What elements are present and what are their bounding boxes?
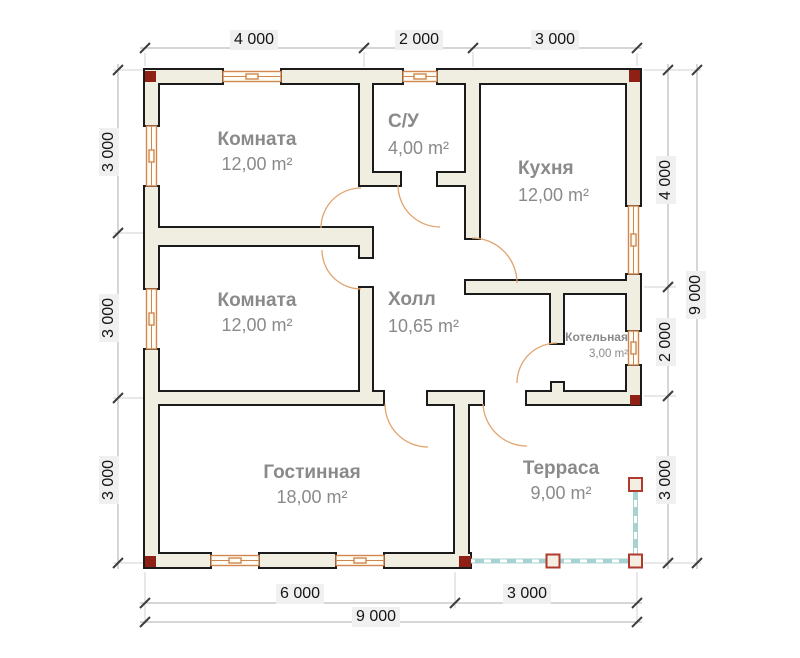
dim-bottom-0: 6 000	[276, 584, 324, 604]
window-icon	[147, 289, 157, 349]
room-label-boiler: Котельная 3,00 m²	[565, 329, 628, 363]
room-name: Комната	[218, 288, 297, 313]
window-icon	[223, 72, 281, 82]
room-name: Холл	[388, 287, 459, 313]
room-area: 12,00 m²	[518, 182, 589, 208]
room-label-terrace: Терраса 9,00 m²	[523, 456, 599, 506]
dim-left-0: 3 000	[99, 128, 119, 176]
terrace-post	[547, 555, 560, 568]
room-name: Кухня	[518, 156, 589, 182]
dim-right-1: 2 000	[656, 318, 676, 366]
room-label-bedroom1: Комната 12,00 m²	[218, 127, 297, 177]
room-name: С/У	[388, 109, 449, 135]
dim-right-2: 3 000	[656, 456, 676, 504]
dim-top-1: 2 000	[395, 30, 443, 50]
window-icon	[147, 126, 157, 186]
room-area: 3,00 m²	[565, 346, 628, 363]
window-icon	[629, 331, 639, 365]
room-label-living: Гостинная 18,00 m²	[263, 460, 360, 510]
room-label-bathroom: С/У 4,00 m²	[388, 109, 449, 161]
window-icon	[403, 72, 437, 82]
dim-bottom-total: 9 000	[352, 607, 400, 627]
window-icon	[211, 556, 259, 566]
terrace-post	[629, 555, 642, 568]
window-icon	[629, 206, 639, 274]
terrace-post	[629, 478, 642, 491]
room-area: 12,00 m²	[218, 152, 297, 177]
dim-right-total: 9 000	[686, 271, 706, 319]
room-label-hall: Холл 10,65 m²	[388, 287, 459, 339]
floor-plan-canvas: Комната 12,00 m² С/У 4,00 m² Кухня 12,00…	[0, 0, 800, 658]
room-area: 10,65 m²	[388, 313, 459, 339]
dim-left-1: 3 000	[99, 294, 119, 342]
room-label-kitchen: Кухня 12,00 m²	[518, 156, 589, 208]
room-area: 4,00 m²	[388, 135, 449, 161]
room-name: Терраса	[523, 456, 599, 481]
door-arc	[517, 343, 557, 383]
door-arc	[472, 238, 517, 283]
dim-bottom-1: 3 000	[503, 584, 551, 604]
room-name: Котельная	[565, 329, 628, 346]
room-name: Комната	[218, 127, 297, 152]
dim-left-2: 3 000	[99, 456, 119, 504]
room-name: Гостинная	[263, 460, 360, 485]
room-area: 9,00 m²	[523, 481, 599, 506]
dim-top-0: 4 000	[230, 30, 278, 50]
door-arc	[322, 250, 361, 289]
dim-top-2: 3 000	[531, 30, 579, 50]
window-icon	[336, 556, 384, 566]
room-label-bedroom2: Комната 12,00 m²	[218, 288, 297, 338]
door-arc	[385, 404, 428, 447]
dim-right-0: 4 000	[656, 156, 676, 204]
door-arc	[321, 188, 361, 228]
door-arc	[398, 185, 440, 227]
room-area: 18,00 m²	[263, 485, 360, 510]
door-arc	[483, 404, 527, 446]
room-area: 12,00 m²	[218, 313, 297, 338]
